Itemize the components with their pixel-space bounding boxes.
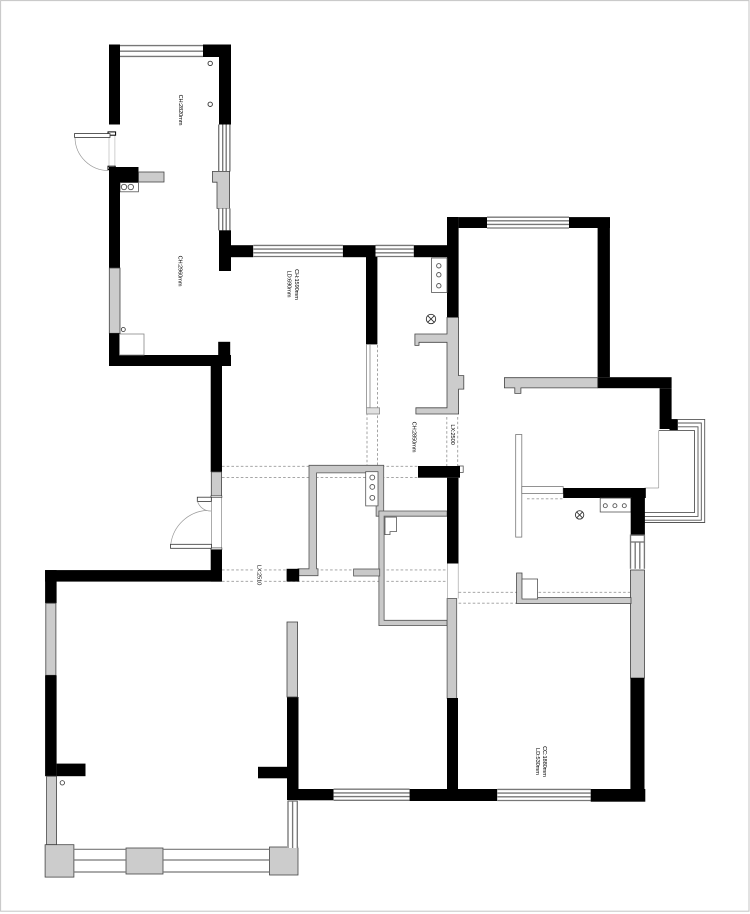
svg-text:LD:530mm: LD:530mm [534, 748, 540, 775]
svg-text:LD:690mm: LD:690mm [286, 271, 292, 298]
svg-text:CH:2850mm: CH:2850mm [411, 422, 417, 453]
svg-text:CC:1880mm: CC:1880mm [541, 746, 547, 777]
svg-text:CH:1590mm: CH:1590mm [293, 269, 299, 300]
svg-text:CH:2960mm: CH:2960mm [176, 256, 182, 287]
svg-text:LX:2500: LX:2500 [449, 424, 455, 444]
svg-text:LX:2510: LX:2510 [256, 565, 262, 585]
svg-text:CH:2820mm: CH:2820mm [177, 95, 183, 126]
